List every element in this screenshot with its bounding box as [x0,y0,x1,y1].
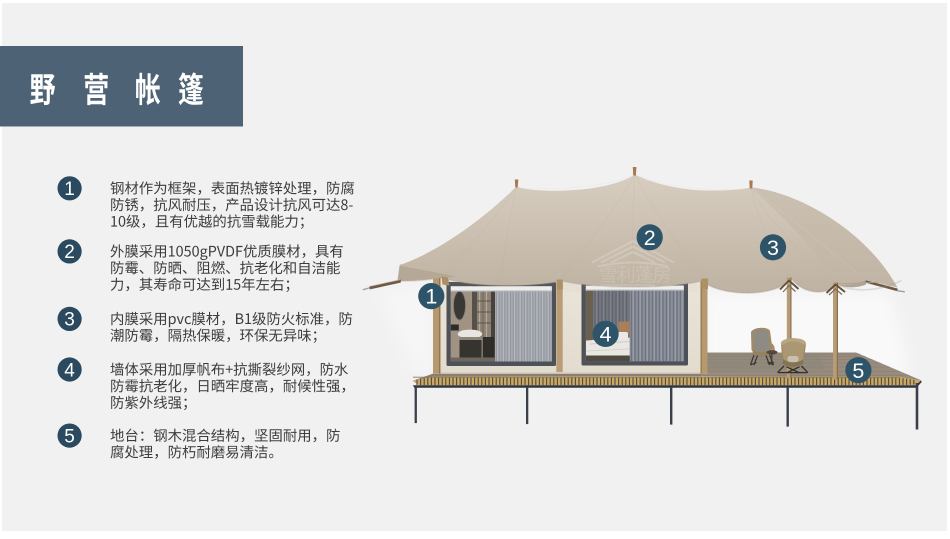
svg-text:5: 5 [64,426,75,447]
svg-text:5: 5 [852,359,864,383]
svg-text:4: 4 [64,360,75,381]
svg-text:3: 3 [767,236,779,260]
svg-text:1: 1 [425,285,437,309]
svg-text:2: 2 [64,242,75,263]
svg-text:4: 4 [600,323,612,347]
svg-text:1: 1 [64,179,75,200]
svg-text:3: 3 [64,310,75,331]
svg-text:2: 2 [644,226,656,250]
